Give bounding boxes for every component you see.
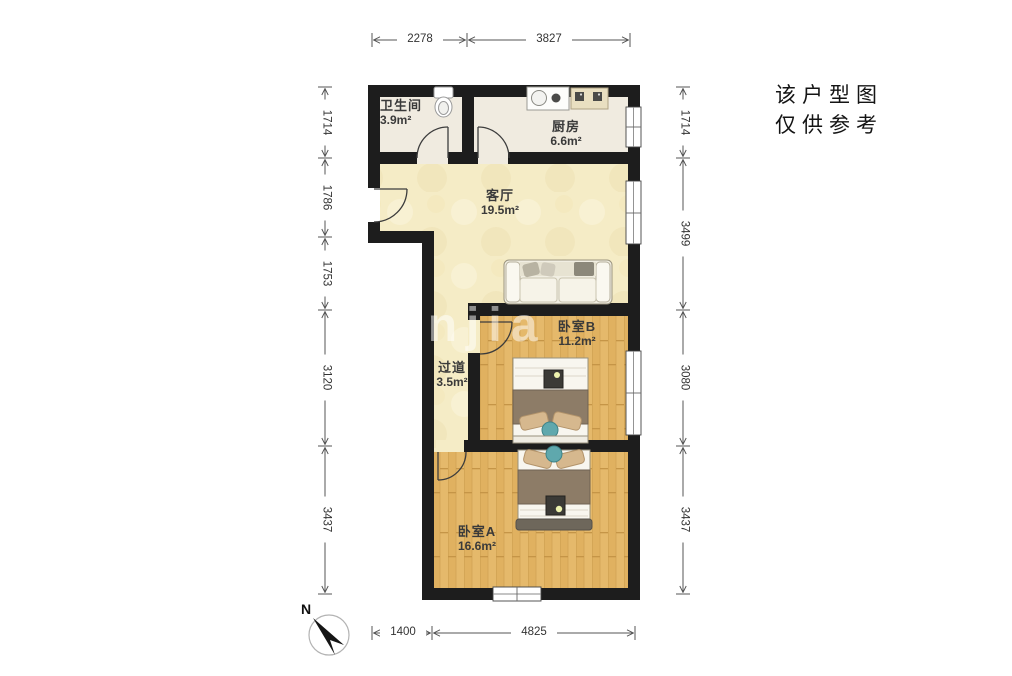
room-label-hallway: 过道 3.5m² [430,360,474,389]
room-area: 3.5m² [430,375,474,389]
wall-left-upper [368,85,380,188]
wall-west [422,231,434,600]
dim-left-3: 1753 [320,251,333,297]
room-label-bedroom-b: 卧室B 11.2m² [549,319,605,348]
dim-right-4: 3437 [678,497,691,543]
round-pillow-icon [546,446,562,462]
bedroom-a-window [493,587,541,601]
room-name: 卧室B [549,319,605,334]
room-area: 19.5m² [470,203,530,217]
dim-top-2: 3827 [526,33,572,46]
nightstand-b [544,370,563,388]
floor-plan-page: 卫生间 3.9m² 厨房 6.6m² 客厅 19.5m² 过道 3.5m² 卧室… [0,0,1012,676]
living-window [626,181,641,244]
kitchen-window [626,107,641,147]
room-area: 6.6m² [536,134,596,148]
wall-bath-kitchen-divider [462,95,474,153]
dim-right-2: 3499 [678,211,691,257]
room-name: 过道 [430,360,474,375]
nightstand-a [546,496,565,515]
room-area: 16.6m² [449,539,505,553]
burner-icon [552,94,561,103]
room-label-bedroom-a: 卧室A 16.6m² [449,524,505,553]
dim-bottom-1: 1400 [380,626,426,639]
dim-right-1: 1714 [678,100,691,146]
wall-under-bath-2 [448,152,478,164]
bed-b [513,358,588,443]
compass [309,615,349,655]
room-label-living: 客厅 19.5m² [470,188,530,217]
room-name: 卧室A [449,524,505,539]
dim-right-3: 3080 [678,355,691,401]
compass-n-label: N [301,601,311,617]
wall-under-kitchen [508,152,640,164]
dim-left-2: 1786 [320,175,333,221]
room-name: 客厅 [470,188,530,203]
wall-under-bath-1 [368,152,417,164]
dim-left-1: 1714 [320,100,333,146]
dim-left-5: 3437 [320,497,333,543]
sofa [504,260,612,304]
wall-living-bedroomB [468,303,628,316]
bed-a [516,446,592,530]
wall-hall-east-1 [468,303,480,320]
room-name: 厨房 [536,119,596,134]
kitchen-counter [527,87,608,110]
dim-bottom-2: 4825 [511,626,557,639]
disclaimer-line-2: 仅供参考 [775,110,883,140]
room-area: 3.9m² [380,113,444,127]
bedroom-b-window [626,351,641,435]
room-name: 卫生间 [380,98,444,113]
disclaimer-text: 该户型图 仅供参考 [775,80,883,140]
room-label-bathroom: 卫生间 3.9m² [380,98,444,127]
sink-icon [532,91,547,106]
room-label-kitchen: 厨房 6.6m² [536,119,596,148]
dim-left-4: 3120 [320,355,333,401]
room-area: 11.2m² [549,334,605,348]
disclaimer-line-1: 该户型图 [775,80,883,110]
dim-top-1: 2278 [397,33,443,46]
